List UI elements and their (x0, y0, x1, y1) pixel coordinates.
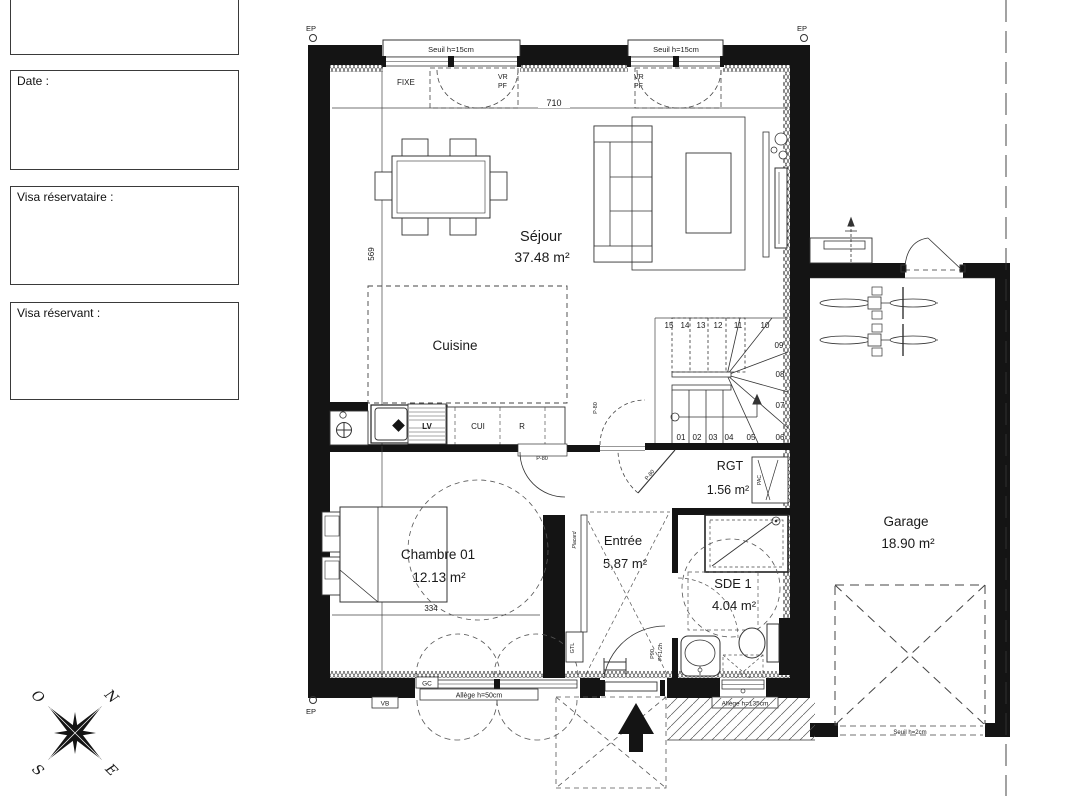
gc-label: GC (422, 681, 432, 688)
shower (705, 515, 788, 572)
dim-334: 334 (424, 604, 438, 613)
room-sde-name: SDE 1 (714, 576, 752, 591)
svg-text:09: 09 (775, 341, 784, 350)
front-door-label-p90: P90 (650, 649, 656, 659)
pf-label: PF (498, 83, 507, 90)
compass-e: E (101, 760, 120, 779)
room-chambre-name: Chambre 01 (401, 547, 475, 562)
svg-text:07: 07 (776, 401, 785, 410)
washbasin (681, 636, 720, 676)
svg-text:01: 01 (677, 433, 686, 442)
ep-label: EP (306, 707, 316, 716)
svg-text:15: 15 (665, 321, 674, 330)
allege50-label: Allège h=50cm (456, 693, 503, 700)
entrance-slab (556, 697, 666, 788)
compass-n: N (100, 686, 121, 707)
room-entree-area: 5,87 m² (603, 556, 648, 571)
room-sde-area: 4.04 m² (712, 598, 757, 613)
pf-label: PF (634, 83, 643, 90)
gtl-label: GTL (570, 643, 576, 654)
floor-plan-drawing: Seuil h=15cm FIXE VR PF Seuil h=15cm (0, 0, 1081, 800)
window-sejour-right: Seuil h=15cm VR PF (627, 40, 724, 108)
seuil2-label: Seuil h=2cm (893, 730, 926, 736)
ep-label: EP (306, 24, 316, 33)
chambre-door: P-80 (518, 444, 567, 497)
svg-text:02: 02 (693, 433, 702, 442)
staircase (671, 318, 788, 443)
compass-s: S (28, 761, 46, 779)
room-garage-name: Garage (883, 514, 928, 529)
svg-text:06: 06 (776, 433, 785, 442)
sofa (594, 126, 652, 262)
kitchen-counter: LV CUI R (368, 404, 565, 445)
floor-plan-page: Date : Visa réservataire : Visa réservan… (0, 0, 1081, 800)
vr-label: VR (498, 74, 508, 81)
dining-table (375, 139, 507, 235)
window-sejour-left: Seuil h=15cm FIXE VR PF (382, 40, 521, 108)
room-rgt-area: 1.56 m² (707, 483, 749, 497)
svg-text:13: 13 (697, 321, 706, 330)
svg-text:11: 11 (734, 321, 743, 330)
rgt-room: P-80 PAC (618, 450, 788, 503)
porch-hatch (667, 698, 815, 740)
garage-zone: Seuil h=2cm (810, 218, 995, 736)
seuil-label: Seuil h=15cm (428, 45, 474, 54)
bicycle (820, 287, 938, 319)
placard-sliding-door (581, 515, 587, 632)
svg-text:03: 03 (709, 433, 718, 442)
room-garage-area: 18.90 m² (881, 536, 935, 551)
garage-door-zone (835, 585, 985, 725)
ep-label: EP (797, 24, 807, 33)
kitchen-door-swing (600, 400, 645, 445)
stair-numbers: 01 02 03 04 05 06 07 08 09 10 11 12 13 1… (665, 321, 785, 442)
kitchen-door-label: P-80 (593, 402, 599, 414)
electrical-cell (330, 411, 368, 445)
r-label: R (519, 422, 525, 431)
cui-label: CUI (471, 422, 485, 431)
dim-710: 710 (546, 98, 561, 108)
rgt-door-label: P-80 (644, 469, 656, 482)
entrance-arrow (618, 703, 654, 752)
seuil-label: Seuil h=15cm (653, 45, 699, 54)
svg-text:05: 05 (747, 433, 756, 442)
chambre-door-label: P-80 (536, 456, 548, 462)
room-rgt-name: RGT (717, 459, 744, 473)
svg-text:08: 08 (776, 370, 785, 379)
garage-gate (901, 238, 965, 272)
vr-label: VR (634, 74, 644, 81)
lv-label: LV (422, 422, 432, 431)
stair-direction-arrow (753, 395, 761, 404)
room-sejour-area: 37.48 m² (514, 249, 570, 265)
room-sejour-name: Séjour (520, 229, 562, 245)
fixe-label: FIXE (397, 78, 415, 87)
room-chambre-area: 12.13 m² (412, 570, 466, 585)
bicycle (820, 324, 938, 356)
compass-o: O (28, 687, 48, 707)
pac-label: PAC (757, 475, 763, 485)
rgt-door-swing (618, 451, 638, 493)
mast-structure (810, 218, 872, 263)
dim-569: 569 (367, 247, 376, 261)
svg-text:04: 04 (725, 433, 734, 442)
tv-console (763, 132, 787, 257)
svg-text:12: 12 (714, 321, 723, 330)
placard-label: Placard (572, 531, 578, 548)
svg-text:14: 14 (681, 321, 690, 330)
svg-text:10: 10 (761, 321, 770, 330)
room-cuisine-name: Cuisine (432, 338, 477, 353)
front-door (600, 678, 667, 698)
compass-rose: N E S O (0, 650, 157, 800)
vb-label: VB (381, 701, 390, 708)
room-entree-name: Entrée (604, 533, 642, 548)
front-door-label-pf: PF1/2h (658, 643, 664, 661)
